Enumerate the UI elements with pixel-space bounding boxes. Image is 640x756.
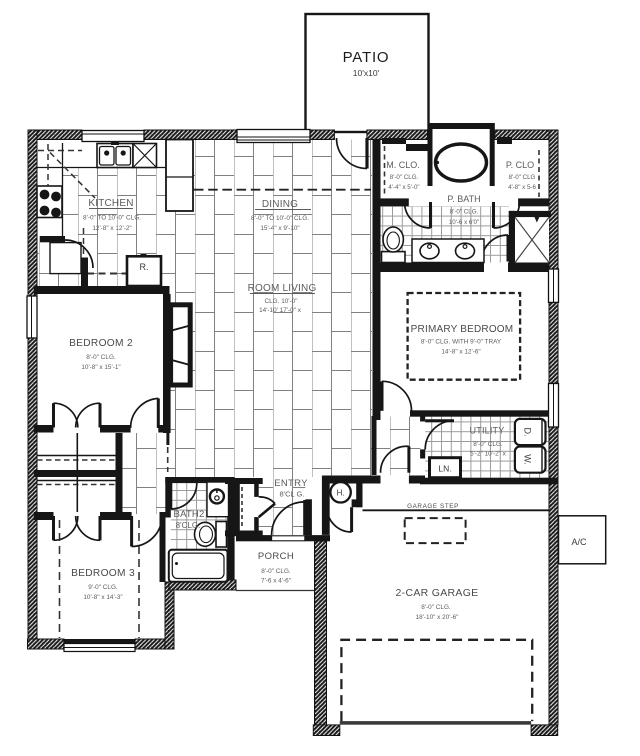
svg-text:LN.: LN.	[438, 464, 451, 474]
svg-text:PRIMARY BEDROOM: PRIMARY BEDROOM	[411, 324, 514, 335]
svg-text:5'-2" 10'-2" x: 5'-2" 10'-2" x	[470, 451, 507, 458]
svg-text:PATIO: PATIO	[343, 49, 390, 66]
svg-text:10'-8" x 14'-3": 10'-8" x 14'-3"	[83, 594, 122, 601]
svg-text:12'-8" x 12'-2": 12'-8" x 12'-2"	[92, 225, 131, 232]
svg-text:8'-0" CLG. WITH 9'-0" TRAY: 8'-0" CLG. WITH 9'-0" TRAY	[421, 339, 502, 346]
svg-text:8'-0" TO 10'-0" CLG.: 8'-0" TO 10'-0" CLG.	[251, 215, 309, 222]
svg-text:8'CL G.: 8'CL G.	[280, 490, 305, 499]
svg-text:8'-0" CLG.: 8'-0" CLG.	[473, 441, 503, 448]
svg-text:14'-8" x 12'-6": 14'-8" x 12'-6"	[441, 349, 480, 356]
svg-text:BATH2: BATH2	[174, 509, 205, 520]
svg-text:BEDROOM 2: BEDROOM 2	[69, 338, 133, 349]
svg-text:D.: D.	[523, 428, 533, 437]
svg-text:4'-8" x 5-6: 4'-8" x 5-6	[508, 184, 536, 191]
svg-text:15'-4" x 9'-10": 15'-4" x 9'-10"	[260, 225, 299, 232]
svg-text:8'CLG.: 8'CLG.	[176, 521, 201, 530]
svg-text:4'-4" x 5'-0": 4'-4" x 5'-0"	[388, 184, 419, 191]
svg-text:R.: R.	[140, 262, 149, 272]
svg-text:18'-10" x 20'-6": 18'-10" x 20'-6"	[416, 614, 459, 621]
svg-text:UTILITY: UTILITY	[470, 426, 505, 436]
svg-text:10'-6 x 6'0": 10'-6 x 6'0"	[449, 219, 479, 226]
svg-text:8'-0" CLG.: 8'-0" CLG.	[421, 604, 451, 611]
svg-text:BEDROOM 3: BEDROOM 3	[71, 568, 135, 579]
svg-text:9'-0" CLG.: 9'-0" CLG.	[88, 584, 118, 591]
svg-text:2-CAR GARAGE: 2-CAR GARAGE	[396, 587, 479, 599]
svg-text:8'-0" CLG: 8'-0" CLG	[509, 174, 536, 181]
svg-text:M. CLO.: M. CLO.	[386, 160, 420, 170]
svg-text:P. CLO: P. CLO	[506, 160, 534, 170]
svg-text:ROOM LIVING: ROOM LIVING	[248, 283, 317, 294]
svg-text:W.: W.	[523, 454, 533, 465]
svg-text:8'-0" TO 10'-0" CLG.: 8'-0" TO 10'-0" CLG.	[83, 215, 141, 222]
svg-text:7'-6 x 4'-6": 7'-6 x 4'-6"	[261, 578, 291, 585]
svg-text:A/C: A/C	[571, 537, 587, 547]
svg-text:H.: H.	[337, 489, 345, 498]
svg-text:DINING: DINING	[262, 199, 298, 210]
svg-text:8'-0" CLG.: 8'-0" CLG.	[261, 568, 291, 575]
svg-text:PORCH: PORCH	[258, 551, 294, 562]
svg-text:P. BATH: P. BATH	[447, 194, 480, 204]
svg-text:8'-0" CLG.: 8'-0" CLG.	[86, 354, 116, 361]
svg-text:ENTRY: ENTRY	[274, 478, 308, 489]
svg-text:10'-8" x 15'-1": 10'-8" x 15'-1"	[81, 364, 120, 371]
svg-text:GARAGE STEP: GARAGE STEP	[407, 503, 459, 510]
svg-text:KITCHEN: KITCHEN	[88, 198, 133, 209]
svg-text:8'-0" CLG.: 8'-0" CLG.	[450, 209, 479, 216]
svg-text:10'x10': 10'x10'	[353, 68, 380, 78]
svg-text:8'-0" CLG.: 8'-0" CLG.	[390, 174, 419, 181]
svg-text:14'-10' 17'-0" x: 14'-10' 17'-0" x	[259, 307, 302, 314]
svg-text:CLG. 10'-0": CLG. 10'-0"	[265, 298, 298, 305]
